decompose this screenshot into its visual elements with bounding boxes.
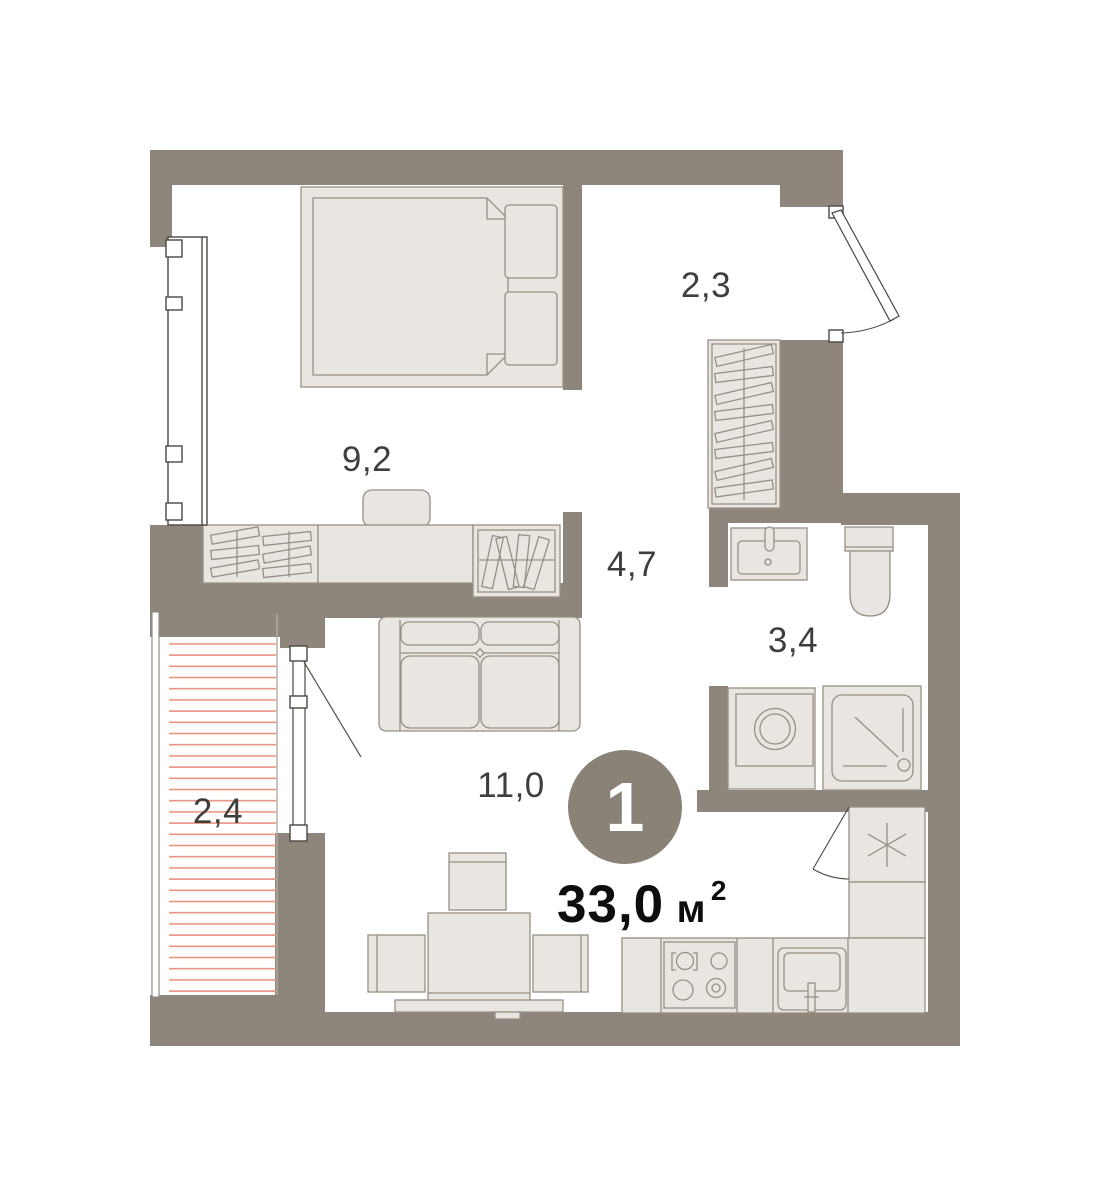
balcony-door-jamb-mid bbox=[290, 696, 307, 708]
kitchen-door-arc bbox=[813, 869, 849, 879]
balcony-area-label: 2,4 bbox=[193, 792, 243, 831]
total-area-unit: м bbox=[677, 888, 706, 931]
wall-left-top bbox=[150, 150, 172, 247]
wall-balcony-top-a bbox=[150, 612, 280, 637]
bedroom-window-block-3 bbox=[166, 446, 182, 462]
unit-number: 1 bbox=[606, 768, 645, 846]
wall-top bbox=[150, 150, 782, 185]
kitchen-cabinet-cell bbox=[849, 882, 925, 938]
washing-machine-body bbox=[728, 688, 815, 789]
kitchen-door-swing bbox=[813, 807, 849, 879]
dining-bench bbox=[395, 1000, 563, 1012]
bed bbox=[301, 187, 563, 387]
wall-bottom-band bbox=[150, 1012, 960, 1046]
shower-tray bbox=[823, 686, 921, 790]
wall-right-of-wardrobe bbox=[780, 340, 843, 523]
dining-table bbox=[428, 913, 530, 1003]
wall-bedroom-divider-upper bbox=[563, 185, 582, 390]
total-area: 33,0 м 2 bbox=[557, 875, 727, 934]
bathroom-area-label: 3,4 bbox=[768, 621, 818, 660]
balcony-door bbox=[290, 646, 361, 841]
sofa bbox=[379, 617, 580, 731]
total-area-superscript: 2 bbox=[711, 875, 727, 906]
wall-left-bottom-block bbox=[150, 995, 170, 1046]
bedroom-window bbox=[166, 237, 207, 525]
bathroom-sink bbox=[731, 527, 807, 580]
bedroom-window-block-2 bbox=[166, 297, 182, 310]
toilet bbox=[845, 527, 893, 616]
wall-right-outer bbox=[928, 493, 960, 1046]
unit-badge: 1 bbox=[568, 750, 682, 864]
entrance-door-leaf bbox=[832, 210, 899, 321]
bedroom-window-block-4 bbox=[166, 503, 182, 520]
entrance-door-swing-arc bbox=[841, 319, 894, 333]
wall-balcony-partition bbox=[275, 833, 325, 1015]
washing-machine bbox=[728, 688, 815, 789]
wall-top-right-chunk bbox=[780, 150, 843, 207]
sideboard-middle-section bbox=[318, 525, 473, 583]
dining-chair-right bbox=[533, 935, 588, 992]
kitchen-sink bbox=[778, 948, 846, 1012]
floor-plan-page: 9,2 2,3 4,7 3,4 2,4 11,0 1 33,0 м 2 bbox=[0, 0, 1111, 1200]
dining-set bbox=[368, 853, 588, 1019]
bathroom-sink-faucet bbox=[765, 527, 774, 551]
tv-unit bbox=[363, 490, 430, 527]
hallway-area-label: 4,7 bbox=[607, 545, 657, 584]
balcony-glazing bbox=[152, 612, 159, 997]
wardrobe bbox=[708, 340, 780, 508]
wall-balcony-inner-bottom bbox=[170, 995, 325, 1015]
entrance-door-jamb-bottom bbox=[829, 330, 843, 342]
balcony-door-strip bbox=[293, 648, 305, 840]
wall-bathroom-left-top bbox=[709, 523, 728, 587]
bedroom-area-label: 9,2 bbox=[342, 440, 392, 479]
bed-pillow-top bbox=[505, 205, 557, 278]
balcony-door-jamb-bottom bbox=[290, 825, 307, 841]
bed-pillow-bottom bbox=[505, 292, 557, 365]
shower bbox=[823, 686, 921, 790]
wall-bedroom-divider-lower bbox=[563, 512, 582, 587]
total-area-value: 33,0 bbox=[557, 875, 664, 934]
floor-plan-svg: 9,2 2,3 4,7 3,4 2,4 11,0 1 33,0 м 2 bbox=[0, 0, 1111, 1200]
bedroom-window-block-1 bbox=[166, 240, 182, 257]
bed-blanket bbox=[313, 198, 508, 375]
toilet-bowl bbox=[850, 551, 890, 616]
entrance-door bbox=[829, 206, 899, 342]
dining-bench-tab bbox=[495, 1012, 520, 1019]
entry-hall-area-label: 2,3 bbox=[681, 266, 731, 305]
balcony-door-swing-line bbox=[304, 662, 361, 757]
balcony-door-jamb-top bbox=[290, 646, 307, 661]
bedroom-window-frame bbox=[168, 237, 207, 525]
wall-bathroom-left-bottom bbox=[709, 686, 728, 790]
wall-bathroom-top bbox=[841, 493, 928, 525]
kitchen-living-area-label: 11,0 bbox=[477, 766, 545, 805]
wall-balcony-top-b bbox=[280, 612, 325, 648]
kitchen-door-leaf bbox=[813, 807, 849, 869]
